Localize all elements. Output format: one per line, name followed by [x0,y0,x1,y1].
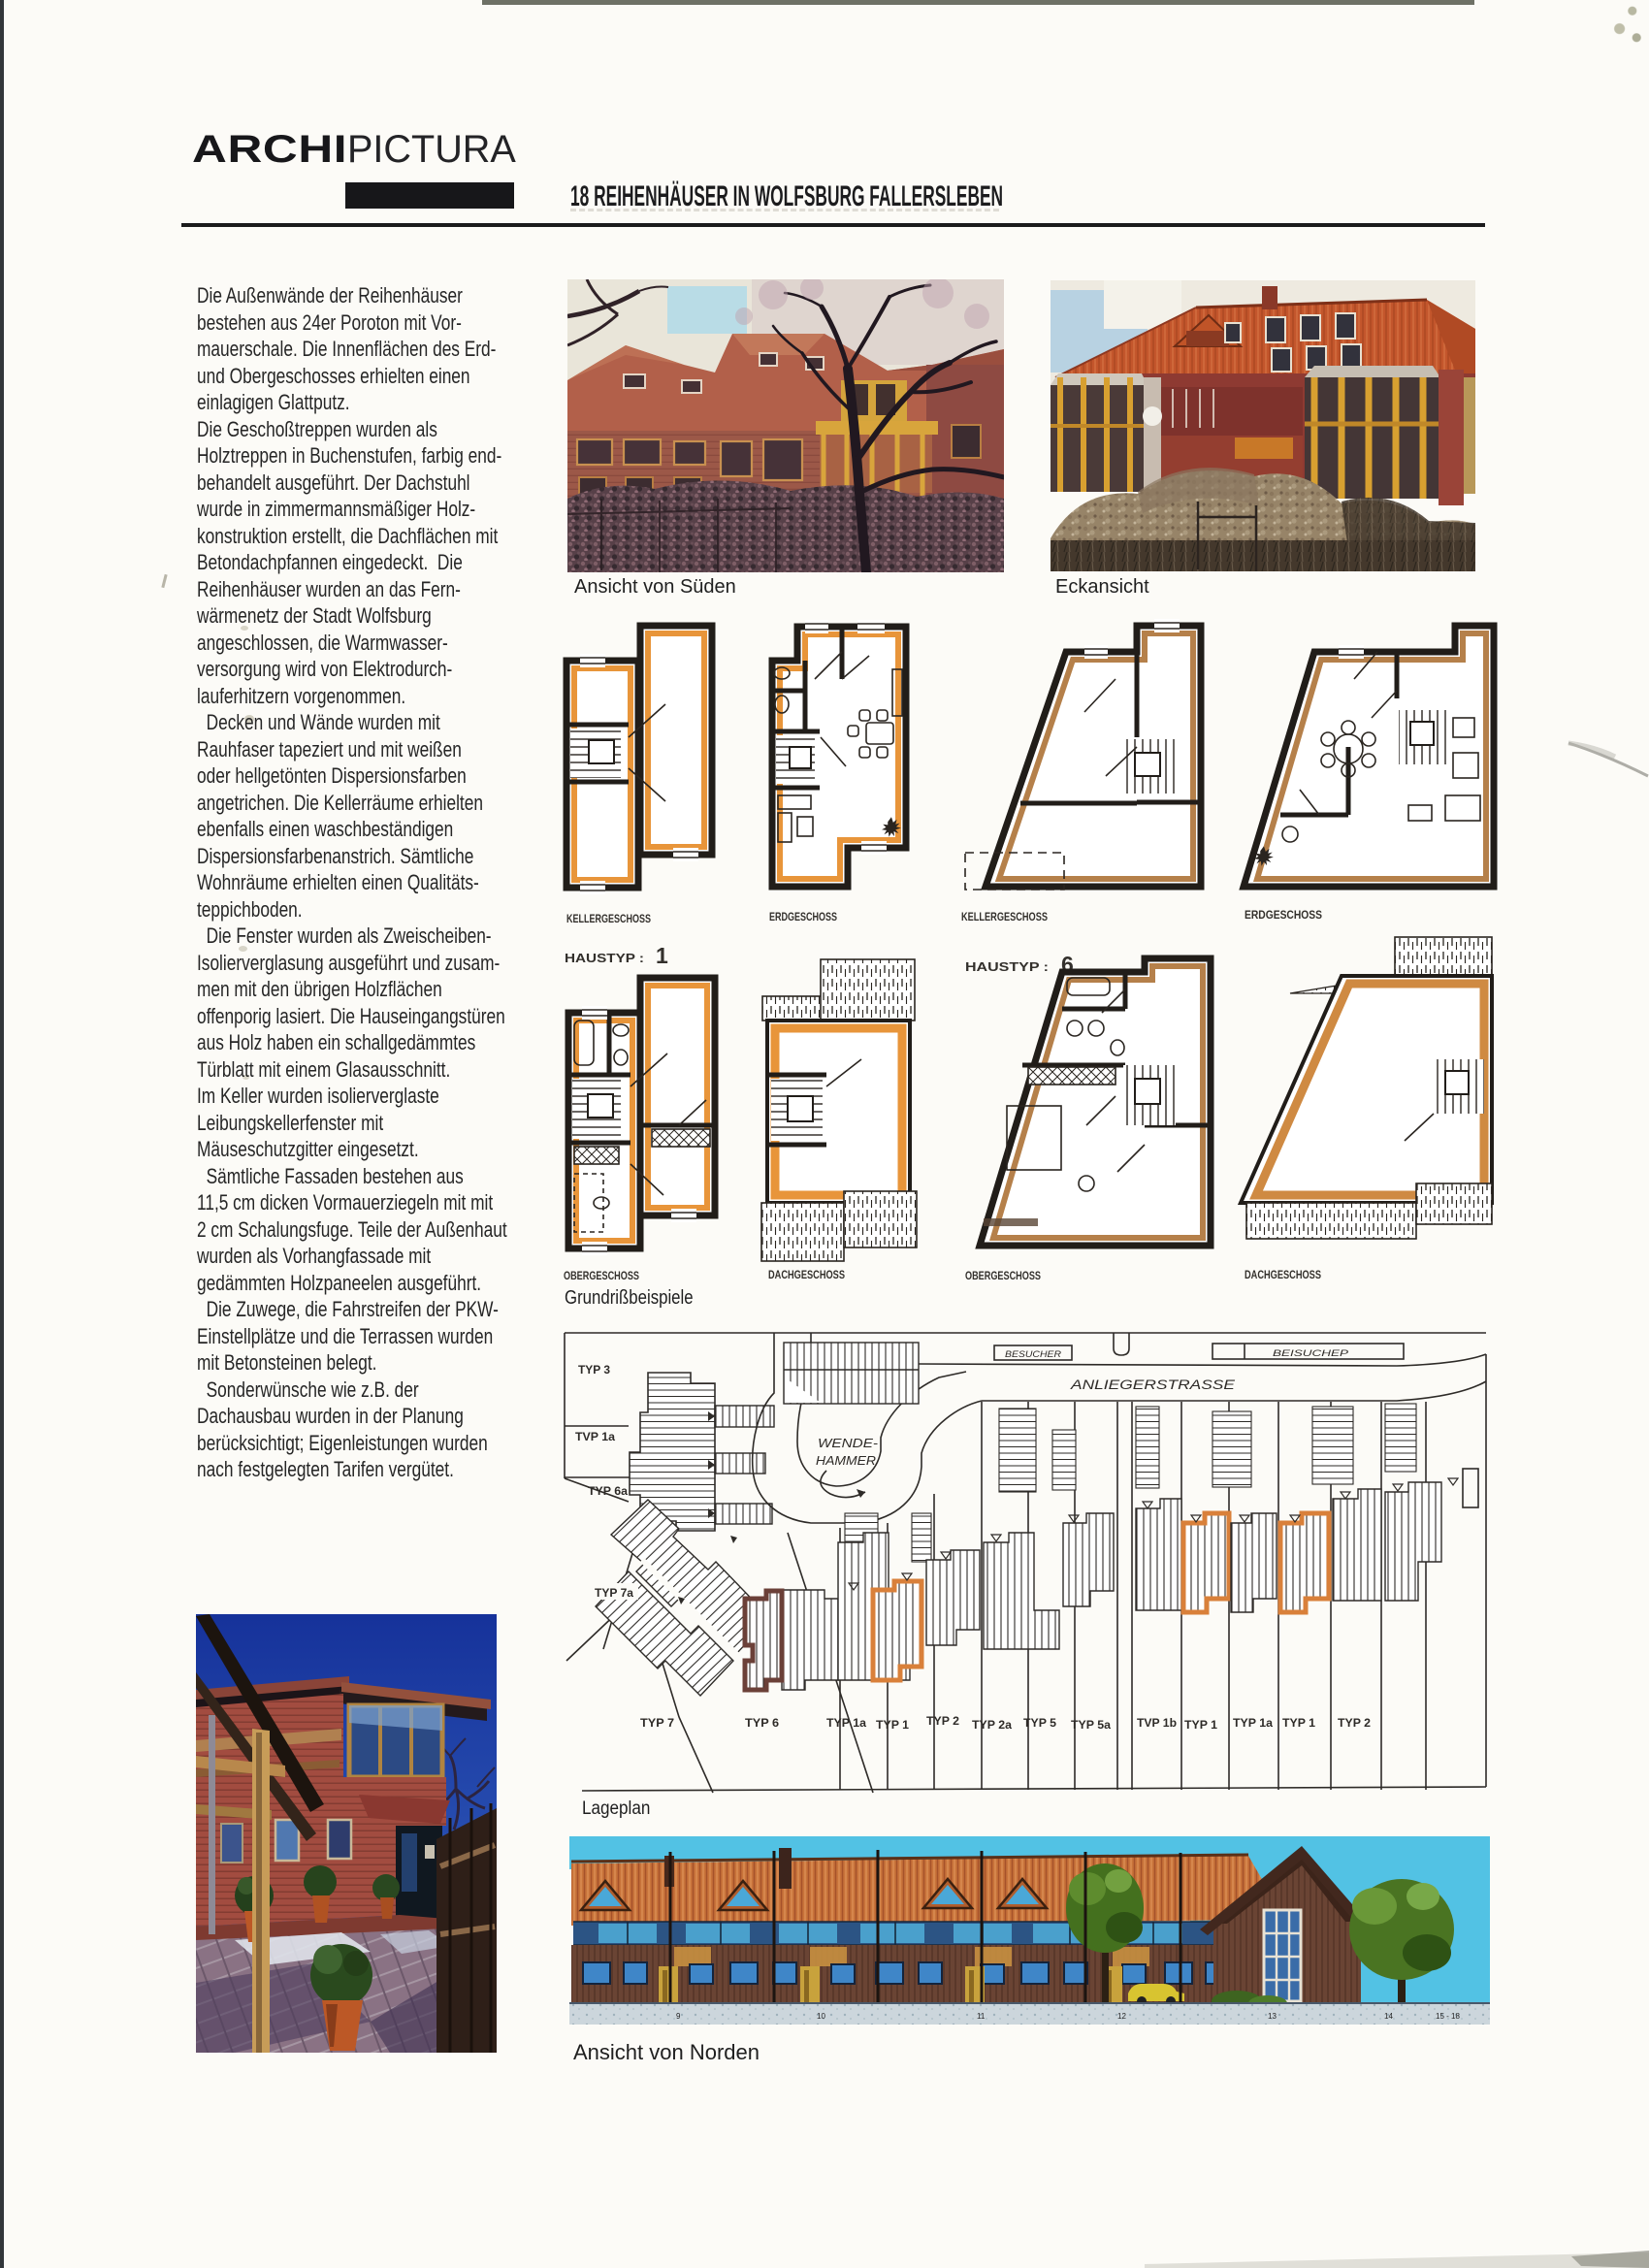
svg-text:DACHGESCHOSS: DACHGESCHOSS [1245,1270,1321,1281]
svg-text:ERDGESCHOSS: ERDGESCHOSS [1245,910,1322,922]
svg-text:14: 14 [1384,2012,1393,2021]
svg-text:9: 9 [676,2012,681,2021]
svg-text:TYP 2: TYP 2 [1338,1718,1371,1730]
svg-text:13: 13 [1268,2012,1277,2021]
svg-text:TYP 7: TYP 7 [640,1718,674,1730]
svg-text:TYP 2: TYP 2 [926,1716,959,1728]
svg-text:ANLIEGERSTRASSE: ANLIEGERSTRASSE [1070,1377,1237,1392]
svg-text:TYP 7a: TYP 7a [595,1588,634,1600]
svg-text:KELLERGESCHOSS: KELLERGESCHOSS [566,914,651,925]
svg-text:TYP 1a: TYP 1a [1233,1718,1274,1730]
svg-text:WENDE-: WENDE- [818,1436,879,1450]
svg-text:BEISUCHEP: BEISUCHEP [1273,1348,1349,1359]
svg-text:DACHGESCHOSS: DACHGESCHOSS [768,1270,845,1281]
svg-text:TYP 6a: TYP 6a [588,1486,629,1498]
svg-text:TYP 1: TYP 1 [876,1720,910,1732]
svg-text:TYP 5: TYP 5 [1023,1718,1057,1730]
svg-text:15 - 18: 15 - 18 [1436,2012,1460,2021]
svg-text:HAUSTYP :: HAUSTYP : [965,959,1049,974]
svg-text:12: 12 [1117,2012,1126,2021]
svg-text:HAUSTYP :: HAUSTYP : [565,951,644,965]
svg-text:TYP 1: TYP 1 [1184,1720,1218,1732]
svg-text:HAMMER: HAMMER [816,1453,876,1468]
svg-text:TYP 1: TYP 1 [1282,1718,1316,1730]
svg-text:TVP 1a: TVP 1a [575,1432,616,1443]
svg-text:TVP 1b: TVP 1b [1137,1718,1177,1730]
svg-text:ERDGESCHOSS: ERDGESCHOSS [769,912,837,923]
svg-text:OBERGESCHOSS: OBERGESCHOSS [564,1271,639,1282]
svg-text:KELLERGESCHOSS: KELLERGESCHOSS [961,912,1048,923]
svg-text:BESUCHER: BESUCHER [1005,1349,1061,1360]
svg-text:10: 10 [817,2012,825,2021]
svg-text:OBERGESCHOSS: OBERGESCHOSS [965,1271,1041,1282]
svg-text:11: 11 [977,2012,986,2021]
svg-text:1: 1 [656,943,668,968]
svg-text:TYP 3: TYP 3 [578,1365,610,1377]
svg-text:TYP 1a: TYP 1a [826,1718,867,1730]
svg-text:TYP 2a: TYP 2a [972,1720,1013,1732]
svg-text:TYP 5a: TYP 5a [1071,1720,1112,1732]
svg-text:TYP 6: TYP 6 [745,1718,779,1730]
